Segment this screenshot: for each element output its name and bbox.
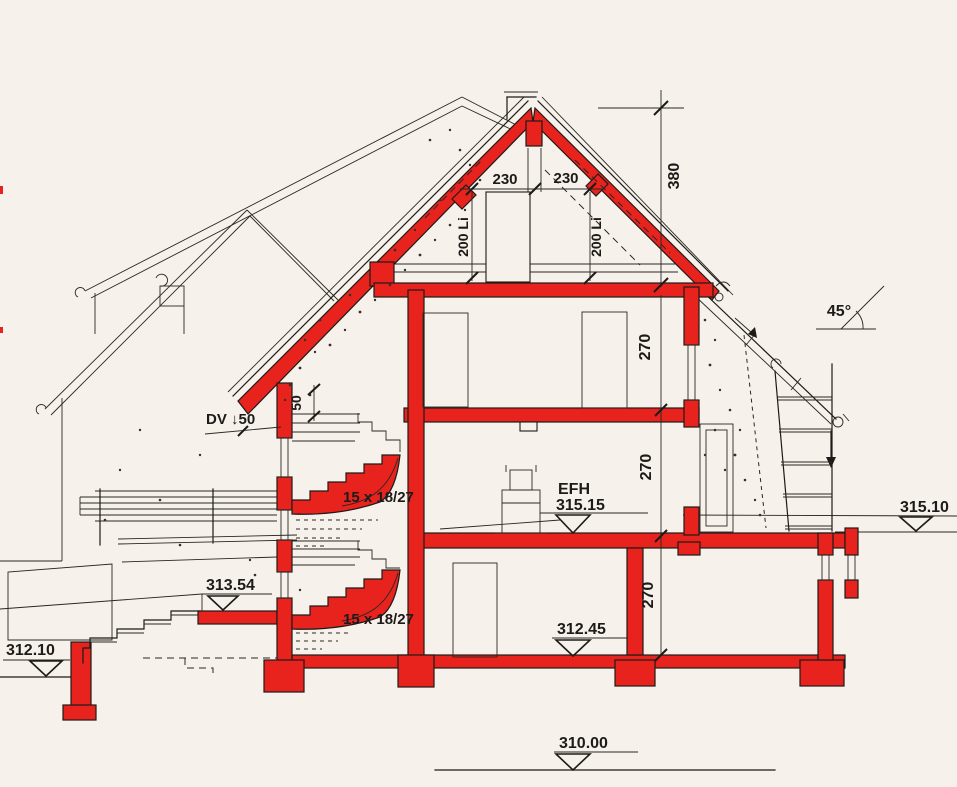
eave-note-label: DV ↓50 xyxy=(206,411,255,428)
stairs-upper-label: 15 x 18/27 xyxy=(343,489,414,506)
lightwell-wall-top xyxy=(845,528,858,555)
retaining-pillar-footing xyxy=(63,705,96,720)
building-section-drawing: 230 230 200 Li 200 Li 380 270 270 270 45… xyxy=(0,0,957,787)
level-312-45: 312.45 xyxy=(552,621,628,656)
gutter-right-icon xyxy=(833,417,843,427)
level-marker-icon xyxy=(900,517,932,531)
section-drawing-svg: 230 230 200 Li 200 Li 380 270 270 270 45… xyxy=(0,0,957,787)
level-efh-name: EFH xyxy=(558,481,590,498)
exterior-door xyxy=(700,424,733,532)
level-312-10: 312.10 xyxy=(3,642,70,676)
terrace-slab xyxy=(198,611,277,624)
left-wall-window-3 xyxy=(277,572,292,598)
level-markers: EFH 315.15 315.10 313.54 312.45 312.10 3… xyxy=(3,481,949,770)
ridge-beam xyxy=(526,121,542,146)
level-marker-icon xyxy=(556,515,590,533)
wall-speckles xyxy=(104,129,762,591)
gutter-left-icon xyxy=(715,293,723,301)
mid-wall-footing xyxy=(615,660,655,686)
level-terrain-right-value: 315.10 xyxy=(900,499,949,516)
dim-50: 50 xyxy=(288,395,304,411)
right-wall-footing xyxy=(800,660,844,686)
left-wall-window-1 xyxy=(277,438,292,477)
basement-floor-slab xyxy=(292,655,845,668)
level-marker-icon xyxy=(208,596,238,610)
beam-under-slab xyxy=(678,542,700,555)
level-marker-icon xyxy=(556,754,590,770)
lightwell-wall-bottom xyxy=(845,580,858,598)
basement-door xyxy=(453,563,497,657)
collar-beam xyxy=(390,264,678,272)
right-basement-wall-bottom xyxy=(818,580,833,660)
ladder xyxy=(771,359,832,531)
dimensions: 230 230 200 Li 200 Li 380 270 270 270 45… xyxy=(205,90,884,661)
level-efh-value: 315.15 xyxy=(556,497,605,514)
left-wall-3 xyxy=(277,540,292,572)
level-basement-value: 312.45 xyxy=(557,621,606,638)
stairs-lower-label: 15 x 18/27 xyxy=(343,611,414,628)
level-315-10: 315.10 xyxy=(900,499,949,531)
retaining-pillar xyxy=(71,642,91,707)
dim-200li-left: 200 Li xyxy=(455,217,471,257)
chimney-block xyxy=(486,192,530,282)
basement-window-right xyxy=(818,555,855,580)
dim-230-left: 230 xyxy=(492,171,517,188)
dim-200li-right: 200 Li xyxy=(588,217,604,257)
dim-270-basement: 270 xyxy=(640,582,657,609)
right-wall-mid xyxy=(684,400,699,427)
level-efh: EFH 315.15 xyxy=(540,481,648,533)
beam-upper xyxy=(520,422,537,431)
dim-270-upper: 270 xyxy=(638,454,655,481)
right-wall-window xyxy=(684,345,699,400)
dim-230-right: 230 xyxy=(553,170,578,187)
scan-artifact xyxy=(0,186,3,194)
exterior-stairs xyxy=(83,611,200,663)
level-310-00: 310.00 xyxy=(435,735,775,770)
level-terrace-value: 313.54 xyxy=(206,577,255,594)
ground-floor-slab xyxy=(420,533,845,548)
roof-right-cut xyxy=(533,108,719,300)
upper-floor-door-left xyxy=(423,313,468,407)
right-basement-wall-top xyxy=(818,533,833,555)
exterior-door-inner xyxy=(706,430,727,526)
left-wall-footing xyxy=(264,660,304,692)
interior-wall xyxy=(408,290,424,660)
upper-floor-door-right xyxy=(582,312,627,408)
level-marker-icon xyxy=(30,661,62,676)
right-wall-upper xyxy=(684,287,699,345)
downspout-arrow-icon xyxy=(826,457,836,468)
level-marker-icon xyxy=(556,640,590,656)
purlin-attic-left xyxy=(370,262,394,286)
level-terrain-left-value: 312.10 xyxy=(6,642,55,659)
left-railing xyxy=(80,489,297,545)
dim-270-attic: 270 xyxy=(637,334,654,361)
left-wall-2 xyxy=(277,477,292,510)
level-foundation-value: 310.00 xyxy=(559,735,608,752)
interior-wall-footing xyxy=(398,655,434,687)
right-wall-lower xyxy=(684,507,699,535)
scan-artifact xyxy=(0,327,3,333)
level-313-54: 313.54 xyxy=(202,577,272,610)
dim-380: 380 xyxy=(666,163,683,190)
roof-pitch-label: 45° xyxy=(827,303,851,320)
